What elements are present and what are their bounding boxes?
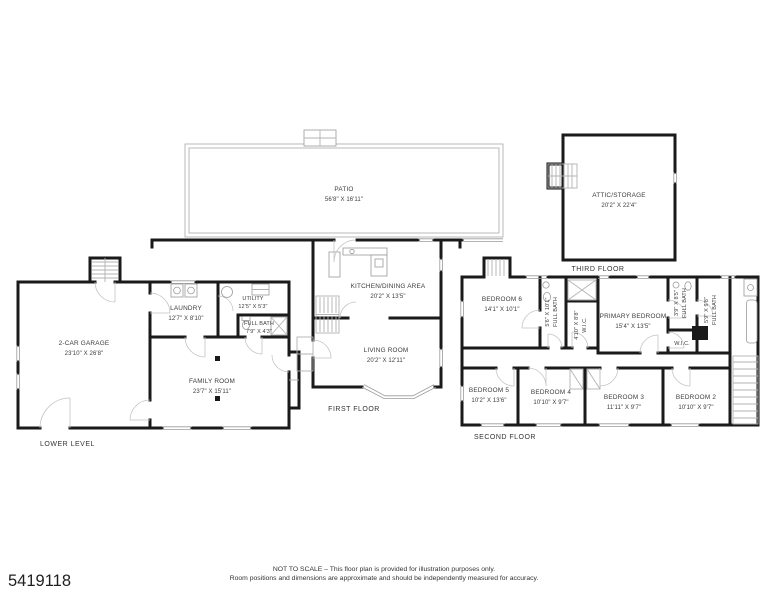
footer: 5419118 NOT TO SCALE – This floor plan i… — [8, 566, 538, 590]
tub-icon — [747, 300, 758, 343]
room-name-bedroom-2: BEDROOM 2 — [676, 394, 716, 401]
room-dims-bedroom-4: 10'10" X 9'7" — [533, 400, 568, 406]
room-name-full-bath-3: FULL BATH — [712, 295, 718, 325]
floor-plan-page: PATIO 56'8" X 16'11" ATTIC/STORAGE 20'2"… — [0, 0, 768, 594]
room-dims-patio: 56'8" X 16'11" — [325, 197, 363, 203]
room-name-utility: UTILITY — [242, 296, 263, 302]
sink-icon — [543, 282, 549, 288]
post — [215, 396, 220, 401]
disclaimer-line-1: NOT TO SCALE – This floor plan is provid… — [273, 566, 495, 573]
room-name-full-bath-ll: FULL BATH — [244, 321, 274, 327]
room-dims-full-bath-ll: 7'9" X 4'3" — [246, 329, 272, 335]
room-name-patio: PATIO — [334, 186, 353, 193]
room-name-attic: ATTIC/STORAGE — [592, 192, 646, 199]
room-dims-full-bath-1: 5'6" X 10'1" — [545, 297, 551, 326]
room-name-living-room: LIVING ROOM — [364, 347, 409, 354]
kitchen-counter — [329, 248, 387, 277]
water-heater-icon — [222, 287, 233, 298]
room-dims-attic: 20'2" X 22'4" — [601, 203, 636, 209]
room-dims-laundry: 12'7" X 8'10" — [168, 316, 203, 322]
room-name-wic-1: W.I.C. — [582, 317, 588, 333]
room-dims-garage: 23'10" X 26'8" — [65, 351, 104, 357]
bath3-fixtures — [744, 279, 757, 343]
room-name-bedroom-4: BEDROOM 4 — [531, 389, 571, 396]
second-floor-plan: BEDROOM 6 14'1" X 10'1" FULL BATH 5'6" X… — [461, 258, 758, 441]
room-dims-family-room: 23'7" X 15'11" — [193, 389, 231, 395]
room-dims-bedroom-6: 14'1" X 10'1" — [484, 307, 519, 313]
floor-plan-canvas: PATIO 56'8" X 16'11" ATTIC/STORAGE 20'2"… — [0, 0, 768, 594]
primary-closet — [568, 280, 596, 300]
sink-icon — [748, 285, 754, 291]
listing-id: 5419118 — [8, 572, 71, 590]
first-floor-stairs — [316, 296, 339, 333]
room-name-wic-2: W.I.C. — [674, 341, 690, 347]
third-floor-plan: ATTIC/STORAGE 20'2" X 22'4" THIRD FLOOR — [548, 135, 676, 273]
sink-icon — [673, 282, 679, 288]
stove-icon — [375, 259, 383, 267]
floor-label-lower: LOWER LEVEL — [40, 441, 95, 448]
room-dims-wic-1: 4'10" X 8'8" — [574, 310, 580, 339]
floor-label-second: SECOND FLOOR — [474, 434, 536, 441]
room-dims-bedroom-2: 10'10" X 9'7" — [678, 405, 713, 411]
basement-stairs — [92, 258, 118, 282]
room-name-full-bath-1: FULL BATH — [553, 297, 559, 327]
bay-window — [362, 385, 436, 399]
room-name-bedroom-5: BEDROOM 5 — [469, 387, 509, 394]
room-name-full-bath-2: FULL BATH — [682, 288, 688, 318]
room-name-bedroom-3: BEDROOM 3 — [604, 394, 644, 401]
floor-label-first: FIRST FLOOR — [328, 406, 380, 413]
patio-plan: PATIO 56'8" X 16'11" — [185, 130, 503, 237]
room-name-garage: 2-CAR GARAGE — [59, 340, 110, 347]
room-dims-utility: 12'5" X 5'3" — [238, 304, 267, 310]
room-dims-bedroom-3: 11'11" X 9'7" — [607, 405, 641, 411]
room-name-laundry: LAUNDRY — [170, 305, 202, 312]
disclaimer-line-2: Room positions and dimensions are approx… — [230, 575, 539, 582]
room-dims-kitchen-dining: 20'2" X 13'5" — [370, 294, 405, 300]
room-dims-bedroom-5: 10'2" X 13'6" — [471, 398, 506, 404]
room-name-kitchen-dining: KITCHEN/DINING AREA — [351, 283, 426, 290]
sink-icon — [350, 249, 354, 253]
room-name-primary-bedroom: PRIMARY BEDROOM — [600, 313, 667, 320]
washer-dryer-icon — [171, 284, 197, 297]
second-floor-stairs-up — [488, 259, 504, 276]
door-arcs-first — [313, 240, 356, 358]
room-dims-full-bath-3: 5'9" X 9'8" — [704, 297, 710, 323]
second-floor-staircase — [733, 356, 758, 424]
furnace-icon — [252, 284, 269, 295]
floor-label-third: THIRD FLOOR — [572, 266, 625, 273]
lower-level-plan: 2-CAR GARAGE 23'10" X 26'8" LAUNDRY 12'7… — [17, 258, 299, 448]
chimney-block — [692, 326, 708, 340]
post — [215, 356, 220, 361]
room-name-bedroom-6: BEDROOM 6 — [482, 296, 522, 303]
room-dims-primary-bedroom: 15'4" X 13'5" — [615, 324, 650, 330]
room-name-family-room: FAMILY ROOM — [189, 378, 235, 385]
first-floor-plan: KITCHEN/DINING AREA 20'2" X 13'5" LIVING… — [152, 239, 503, 413]
room-dims-living-room: 20'2" X 12'11" — [367, 358, 405, 364]
room-dims-full-bath-2: 3'9" X 8'5" — [674, 290, 680, 316]
